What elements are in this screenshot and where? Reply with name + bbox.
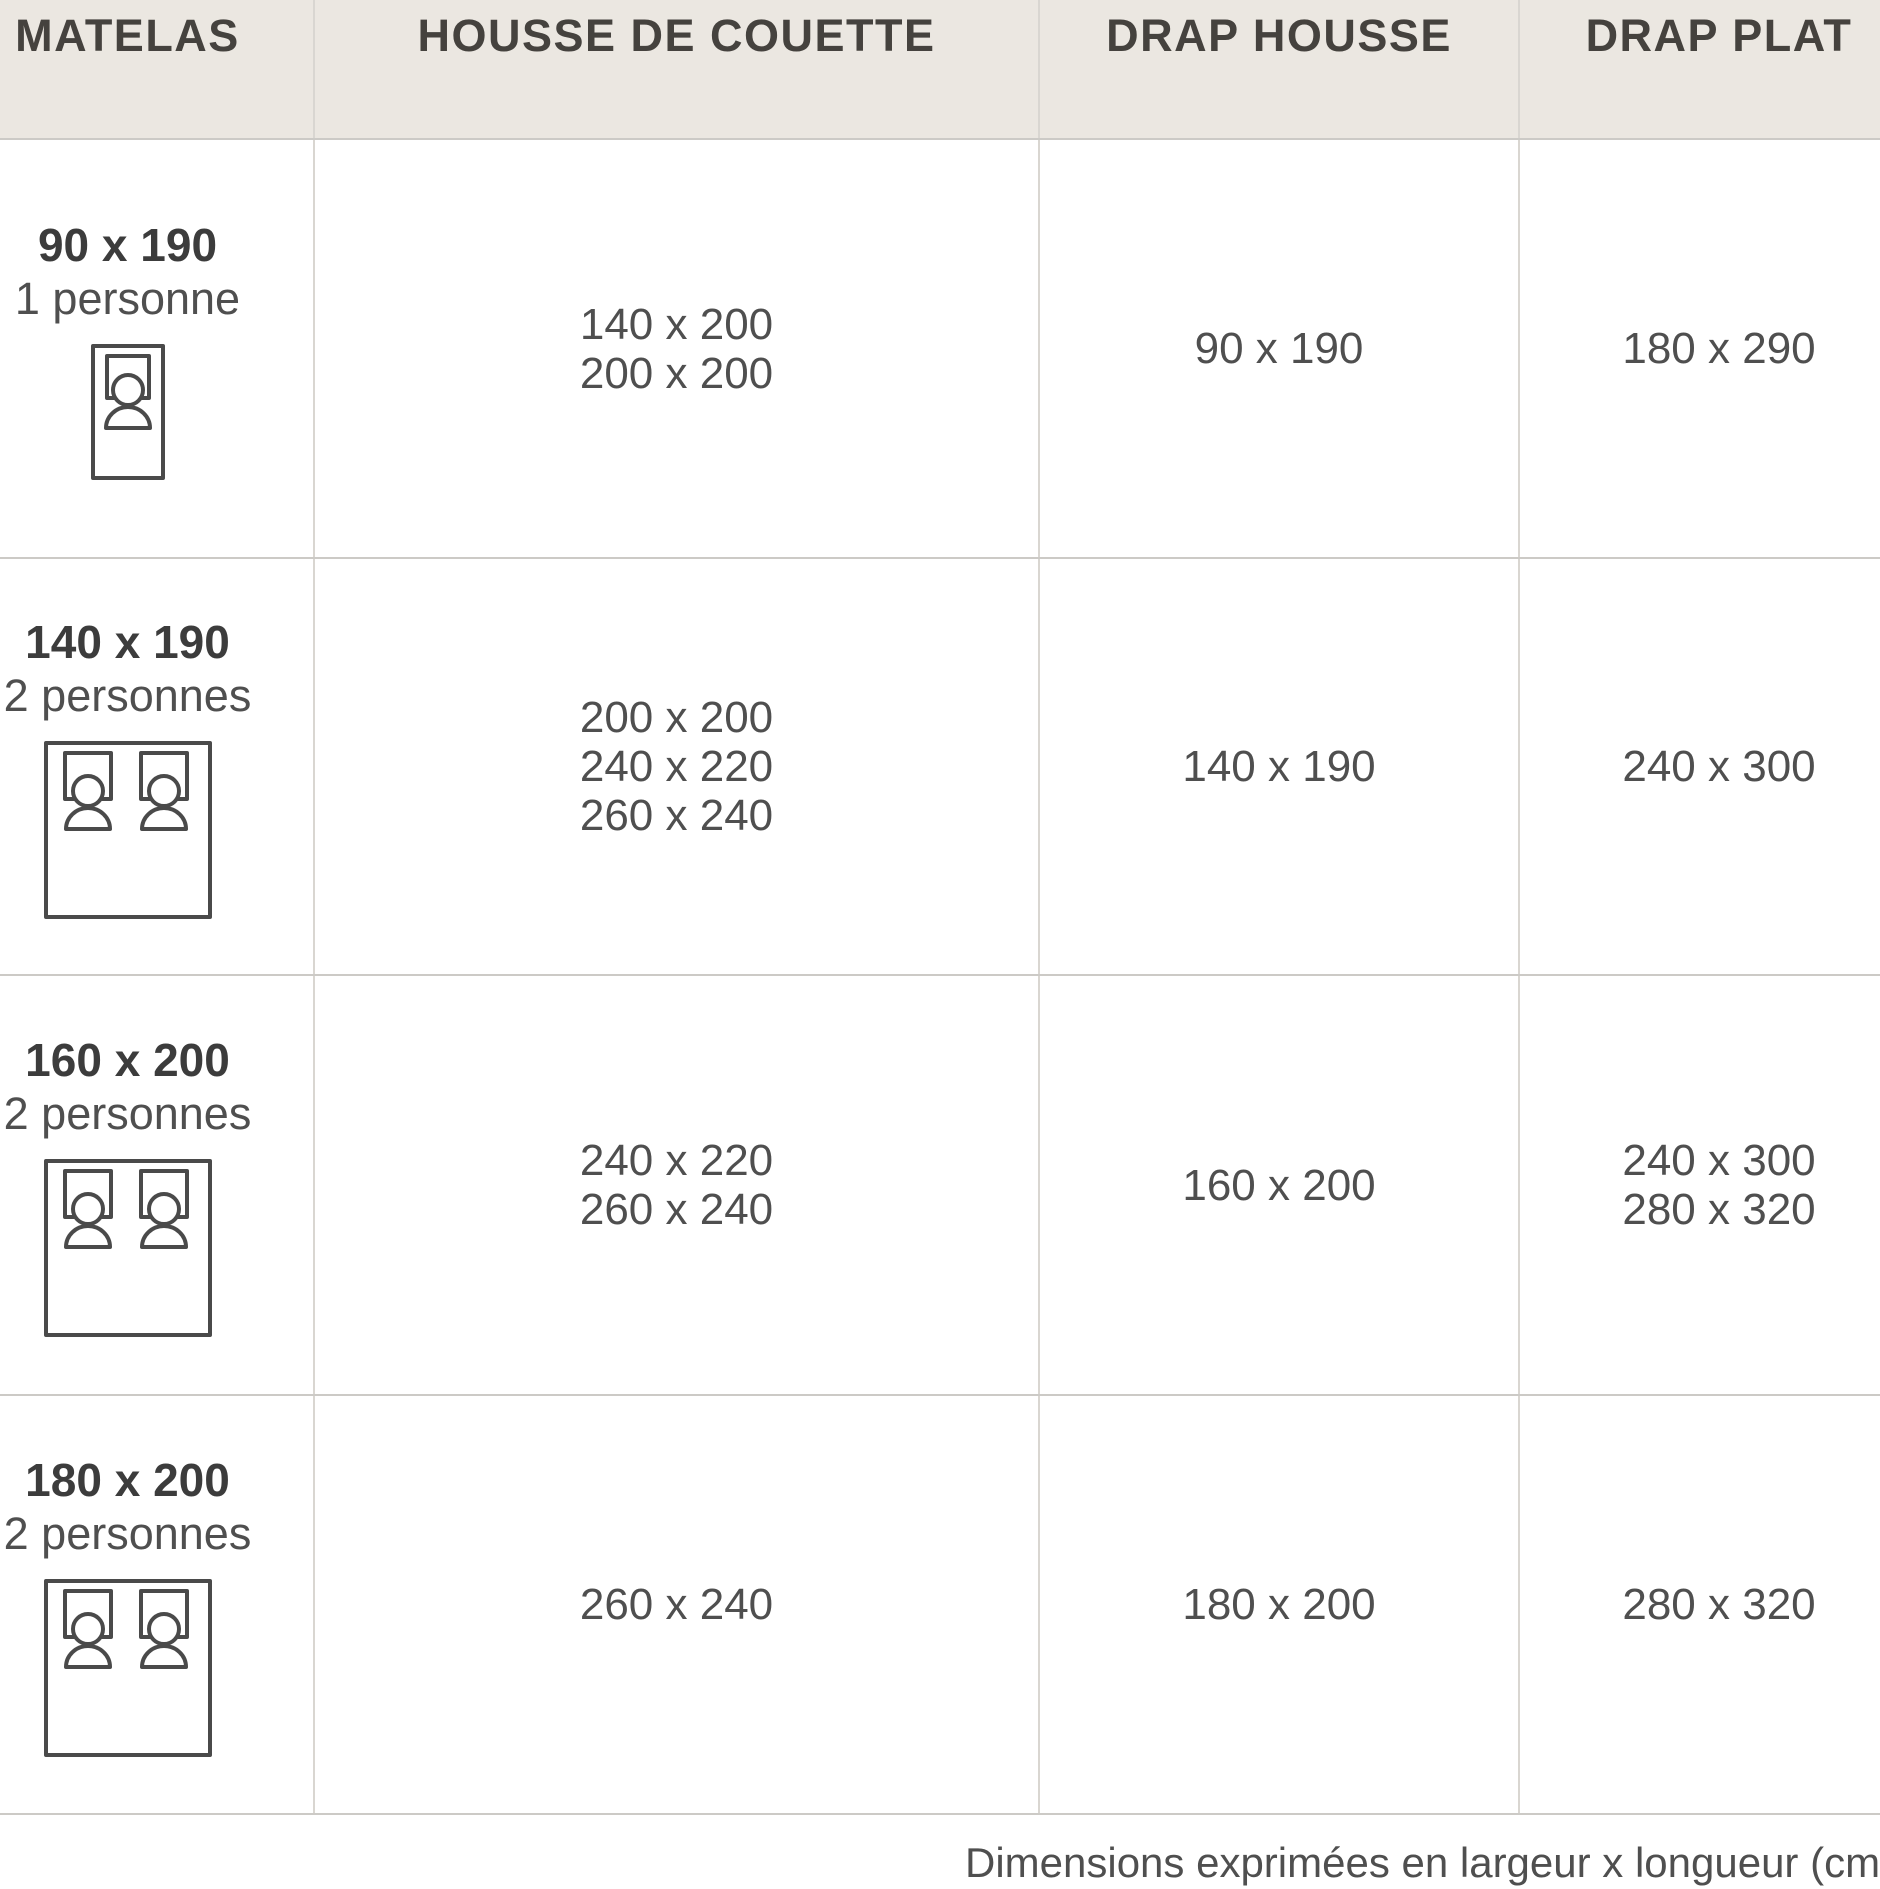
mattress-size: 140 x 190 [25,615,230,669]
dimension-value: 240 x 220 [580,742,773,791]
single-bed-icon [91,344,165,480]
drap-plat-cell: 280 x 320 [1520,1396,1880,1813]
double-bed-icon [44,1159,212,1337]
mattress-persons: 2 personnes [4,1507,252,1561]
header-cell-drap-housse: DRAP HOUSSE [1040,0,1520,138]
dimension-value: 280 x 320 [1622,1580,1815,1629]
housse-de-couette-cell: 140 x 200 200 x 200 [315,140,1040,557]
drap-plat-cell: 240 x 300 280 x 320 [1520,976,1880,1394]
dimension-value: 180 x 290 [1622,324,1815,373]
housse-de-couette-cell: 240 x 220 260 x 240 [315,976,1040,1394]
dimension-value: 260 x 240 [580,791,773,840]
dimension-value: 260 x 240 [580,1580,773,1629]
size-guide-table: MATELAS HOUSSE DE COUETTE DRAP HOUSSE DR… [0,0,1880,1815]
table-header-row: MATELAS HOUSSE DE COUETTE DRAP HOUSSE DR… [0,0,1880,138]
drap-housse-cell: 140 x 190 [1040,559,1520,974]
dimension-value: 160 x 200 [1182,1161,1375,1210]
drap-housse-cell: 90 x 190 [1040,140,1520,557]
dimension-value: 140 x 200 [580,300,773,349]
column-header: MATELAS [15,10,240,62]
table-row: 90 x 190 1 personne 140 x 200 200 x 200 … [0,138,1880,557]
housse-de-couette-cell: 200 x 200 240 x 220 260 x 240 [315,559,1040,974]
matelas-cell: 180 x 200 2 personnes [0,1396,315,1813]
drap-housse-cell: 180 x 200 [1040,1396,1520,1813]
dimension-value: 180 x 200 [1182,1580,1375,1629]
dimension-value: 260 x 240 [580,1185,773,1234]
mattress-size: 160 x 200 [25,1033,230,1087]
header-cell-drap-plat: DRAP PLAT [1520,0,1880,138]
mattress-persons: 1 personne [15,272,240,326]
matelas-cell: 90 x 190 1 personne [0,140,315,557]
mattress-size: 90 x 190 [38,218,217,272]
double-bed-icon [44,1579,212,1757]
drap-plat-cell: 240 x 300 [1520,559,1880,974]
table-row: 160 x 200 2 personnes 240 x 220 260 x 24… [0,974,1880,1394]
dimension-value: 240 x 300 [1622,742,1815,791]
table-row: 140 x 190 2 personnes 200 x 200 240 x 22… [0,557,1880,974]
dimension-value: 200 x 200 [580,349,773,398]
table-row: 180 x 200 2 personnes 260 x 240 180 x [0,1394,1880,1815]
mattress-persons: 2 personnes [4,669,252,723]
double-bed-icon [44,741,212,919]
dimension-value: 240 x 220 [580,1136,773,1185]
drap-housse-cell: 160 x 200 [1040,976,1520,1394]
dimensions-footnote: Dimensions exprimées en largeur x longue… [965,1837,1880,1889]
housse-de-couette-cell: 260 x 240 [315,1396,1040,1813]
dimension-value: 280 x 320 [1622,1185,1815,1234]
header-cell-matelas: MATELAS [0,0,315,138]
matelas-cell: 140 x 190 2 personnes [0,559,315,974]
column-header: HOUSSE DE COUETTE [417,10,935,62]
dimension-value: 200 x 200 [580,693,773,742]
dimension-value: 90 x 190 [1195,324,1364,373]
mattress-persons: 2 personnes [4,1087,252,1141]
header-cell-housse-de-couette: HOUSSE DE COUETTE [315,0,1040,138]
dimension-value: 240 x 300 [1622,1136,1815,1185]
column-header: DRAP HOUSSE [1106,10,1452,62]
matelas-cell: 160 x 200 2 personnes [0,976,315,1394]
column-header: DRAP PLAT [1586,10,1853,62]
drap-plat-cell: 180 x 290 [1520,140,1880,557]
dimension-value: 140 x 190 [1182,742,1375,791]
mattress-size: 180 x 200 [25,1453,230,1507]
